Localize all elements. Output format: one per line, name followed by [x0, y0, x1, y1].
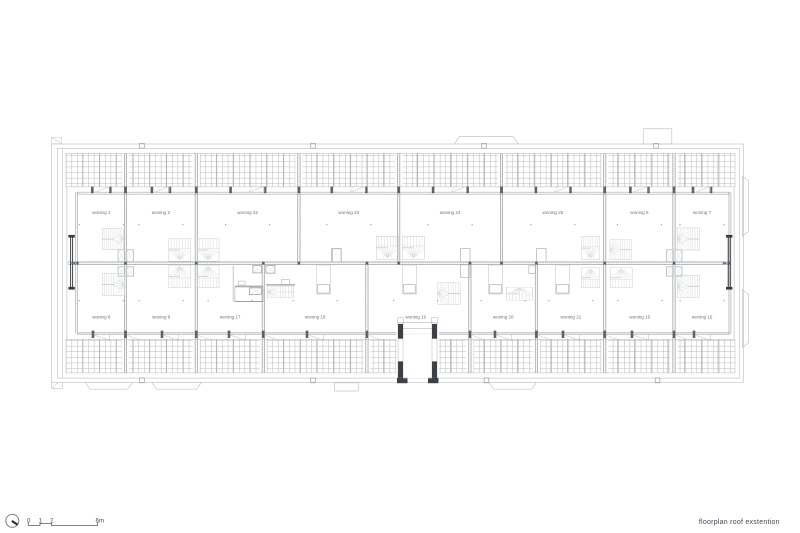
- svg-text:woning 20: woning 20: [493, 314, 514, 319]
- svg-text:woning 16: woning 16: [692, 314, 713, 319]
- svg-text:woning 17: woning 17: [220, 314, 241, 319]
- svg-text:1: 1: [39, 517, 43, 524]
- svg-text:woning 19: woning 19: [405, 314, 426, 319]
- svg-text:woning 24: woning 24: [440, 210, 461, 215]
- svg-text:woning 23: woning 23: [338, 210, 359, 215]
- svg-text:woning 2: woning 2: [152, 210, 171, 215]
- svg-text:woning 1: woning 1: [92, 210, 111, 215]
- svg-text:woning 25: woning 25: [543, 210, 564, 215]
- svg-text:woning 7: woning 7: [693, 210, 712, 215]
- svg-text:0: 0: [27, 517, 31, 524]
- svg-text:floorplan roof exstention: floorplan roof exstention: [699, 519, 780, 526]
- svg-text:woning 6: woning 6: [630, 210, 649, 215]
- svg-text:woning 9: woning 9: [152, 314, 171, 319]
- svg-text:woning 21: woning 21: [561, 314, 582, 319]
- svg-text:woning 15: woning 15: [629, 314, 650, 319]
- svg-text:2: 2: [50, 517, 54, 524]
- svg-text:woning 18: woning 18: [305, 314, 326, 319]
- svg-text:woning 8: woning 8: [92, 314, 111, 319]
- svg-text:6m: 6m: [95, 517, 104, 524]
- svg-text:woning 22: woning 22: [237, 210, 258, 215]
